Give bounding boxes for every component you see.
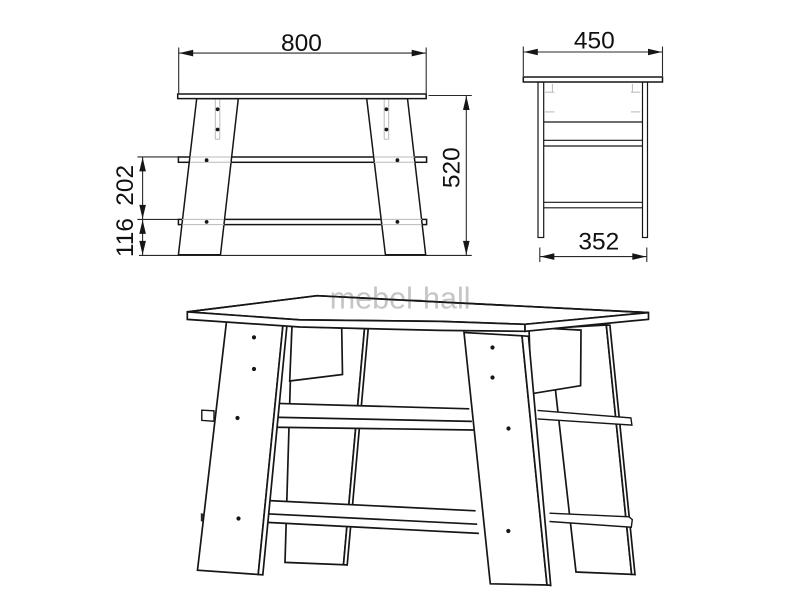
svg-text:450: 450 [574, 28, 615, 55]
svg-text:mebel-hall: mebel-hall [330, 282, 471, 316]
svg-text:800: 800 [281, 30, 322, 57]
svg-text:202: 202 [112, 165, 139, 206]
svg-text:352: 352 [578, 229, 619, 256]
svg-text:520: 520 [438, 147, 465, 188]
svg-text:116: 116 [112, 218, 139, 257]
